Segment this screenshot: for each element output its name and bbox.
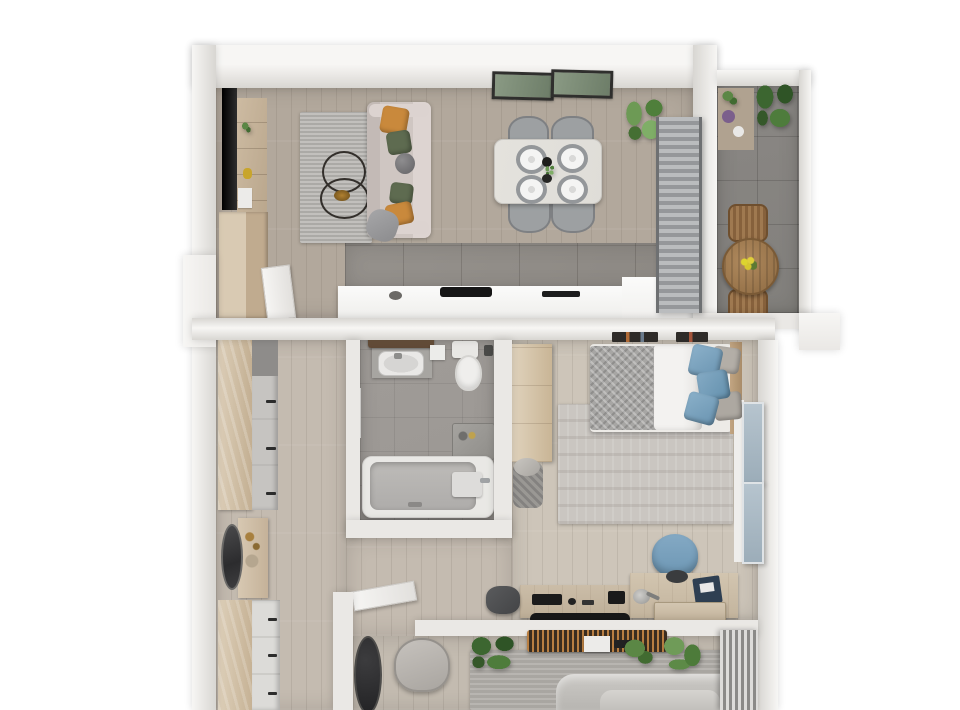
keyboard [532, 594, 562, 605]
bathroom-wall-left [346, 340, 360, 538]
window-glass-panel [742, 482, 764, 564]
grey-round-pillow [395, 153, 415, 174]
oval-mirror [221, 524, 243, 590]
wall-top [192, 45, 717, 88]
potted-plant [656, 630, 708, 676]
wall-shelf-books [676, 332, 708, 342]
white-plant-pot [733, 126, 744, 137]
place-setting [557, 175, 588, 204]
balcony-large-plant [750, 76, 800, 136]
second-room-wall-left [333, 592, 353, 710]
console-accessories [242, 528, 264, 572]
drawer-handle [266, 400, 276, 403]
balcony-shelf-plant [719, 88, 741, 108]
toiletries [458, 430, 478, 442]
bedding-fold [600, 690, 720, 710]
wall-shelf-books [612, 332, 658, 342]
drawer-handle [268, 618, 277, 621]
striped-curtain [720, 630, 758, 710]
yellow-decor-item [243, 168, 252, 179]
floor-mirror [354, 636, 382, 710]
desk-gadget [608, 591, 625, 604]
bathtub-faucet-unit [452, 472, 482, 497]
drawer-handle [266, 492, 276, 495]
bathroom-side-box [430, 345, 445, 360]
balcony-chair [728, 204, 768, 242]
place-setting [557, 144, 588, 173]
wall-right-block [799, 313, 840, 350]
sink-faucet [394, 353, 402, 359]
bedroom-wardrobe [512, 344, 552, 462]
bathtub-drain [408, 502, 422, 507]
mouse [568, 598, 576, 605]
chest-of-drawers [218, 600, 252, 710]
balcony-wall-right [799, 70, 811, 329]
drawer-handle [266, 447, 276, 450]
wardrobe-top-cabinet [252, 338, 278, 376]
hallway-wardrobe [218, 338, 252, 510]
bathroom-wall-accessory [484, 345, 493, 356]
window-glass-panel [742, 402, 764, 484]
cooktop-hob [440, 287, 492, 297]
paper-sheet [699, 582, 714, 593]
toilet-bowl [455, 355, 482, 391]
office-chair-base [666, 570, 688, 583]
centerpiece-bowl [542, 174, 552, 183]
knit-blanket [590, 346, 658, 430]
phone [582, 600, 594, 605]
duffel-bag [486, 586, 520, 614]
tv [222, 87, 237, 210]
floor-plan [0, 0, 960, 710]
counter-tray [542, 291, 580, 297]
bathroom-wall-bottom [346, 520, 512, 538]
drawer-handle [268, 654, 277, 657]
purple-potted-plant [722, 110, 735, 123]
laundry-cloth [514, 458, 540, 476]
potted-plant [618, 634, 660, 670]
tall-kitchen-cabinet [219, 212, 268, 318]
coffee-table-decor [334, 190, 350, 201]
potted-plant [464, 630, 522, 676]
yellow-flowers [739, 256, 757, 271]
lounge-chair [394, 638, 450, 692]
bathroom-wall-right [494, 340, 512, 538]
green-pillow [385, 129, 412, 155]
bathtub-faucet [480, 478, 490, 483]
bench-white-box [584, 636, 610, 652]
wall-picture-frame [551, 69, 614, 99]
white-storage-box [238, 188, 252, 208]
wall-left [192, 45, 216, 710]
wall-picture-frame [492, 71, 555, 101]
shelf-plant [240, 120, 253, 135]
kitchen-sink [389, 291, 402, 300]
drawer-handle [268, 692, 277, 695]
living-room-curtain [656, 117, 702, 313]
